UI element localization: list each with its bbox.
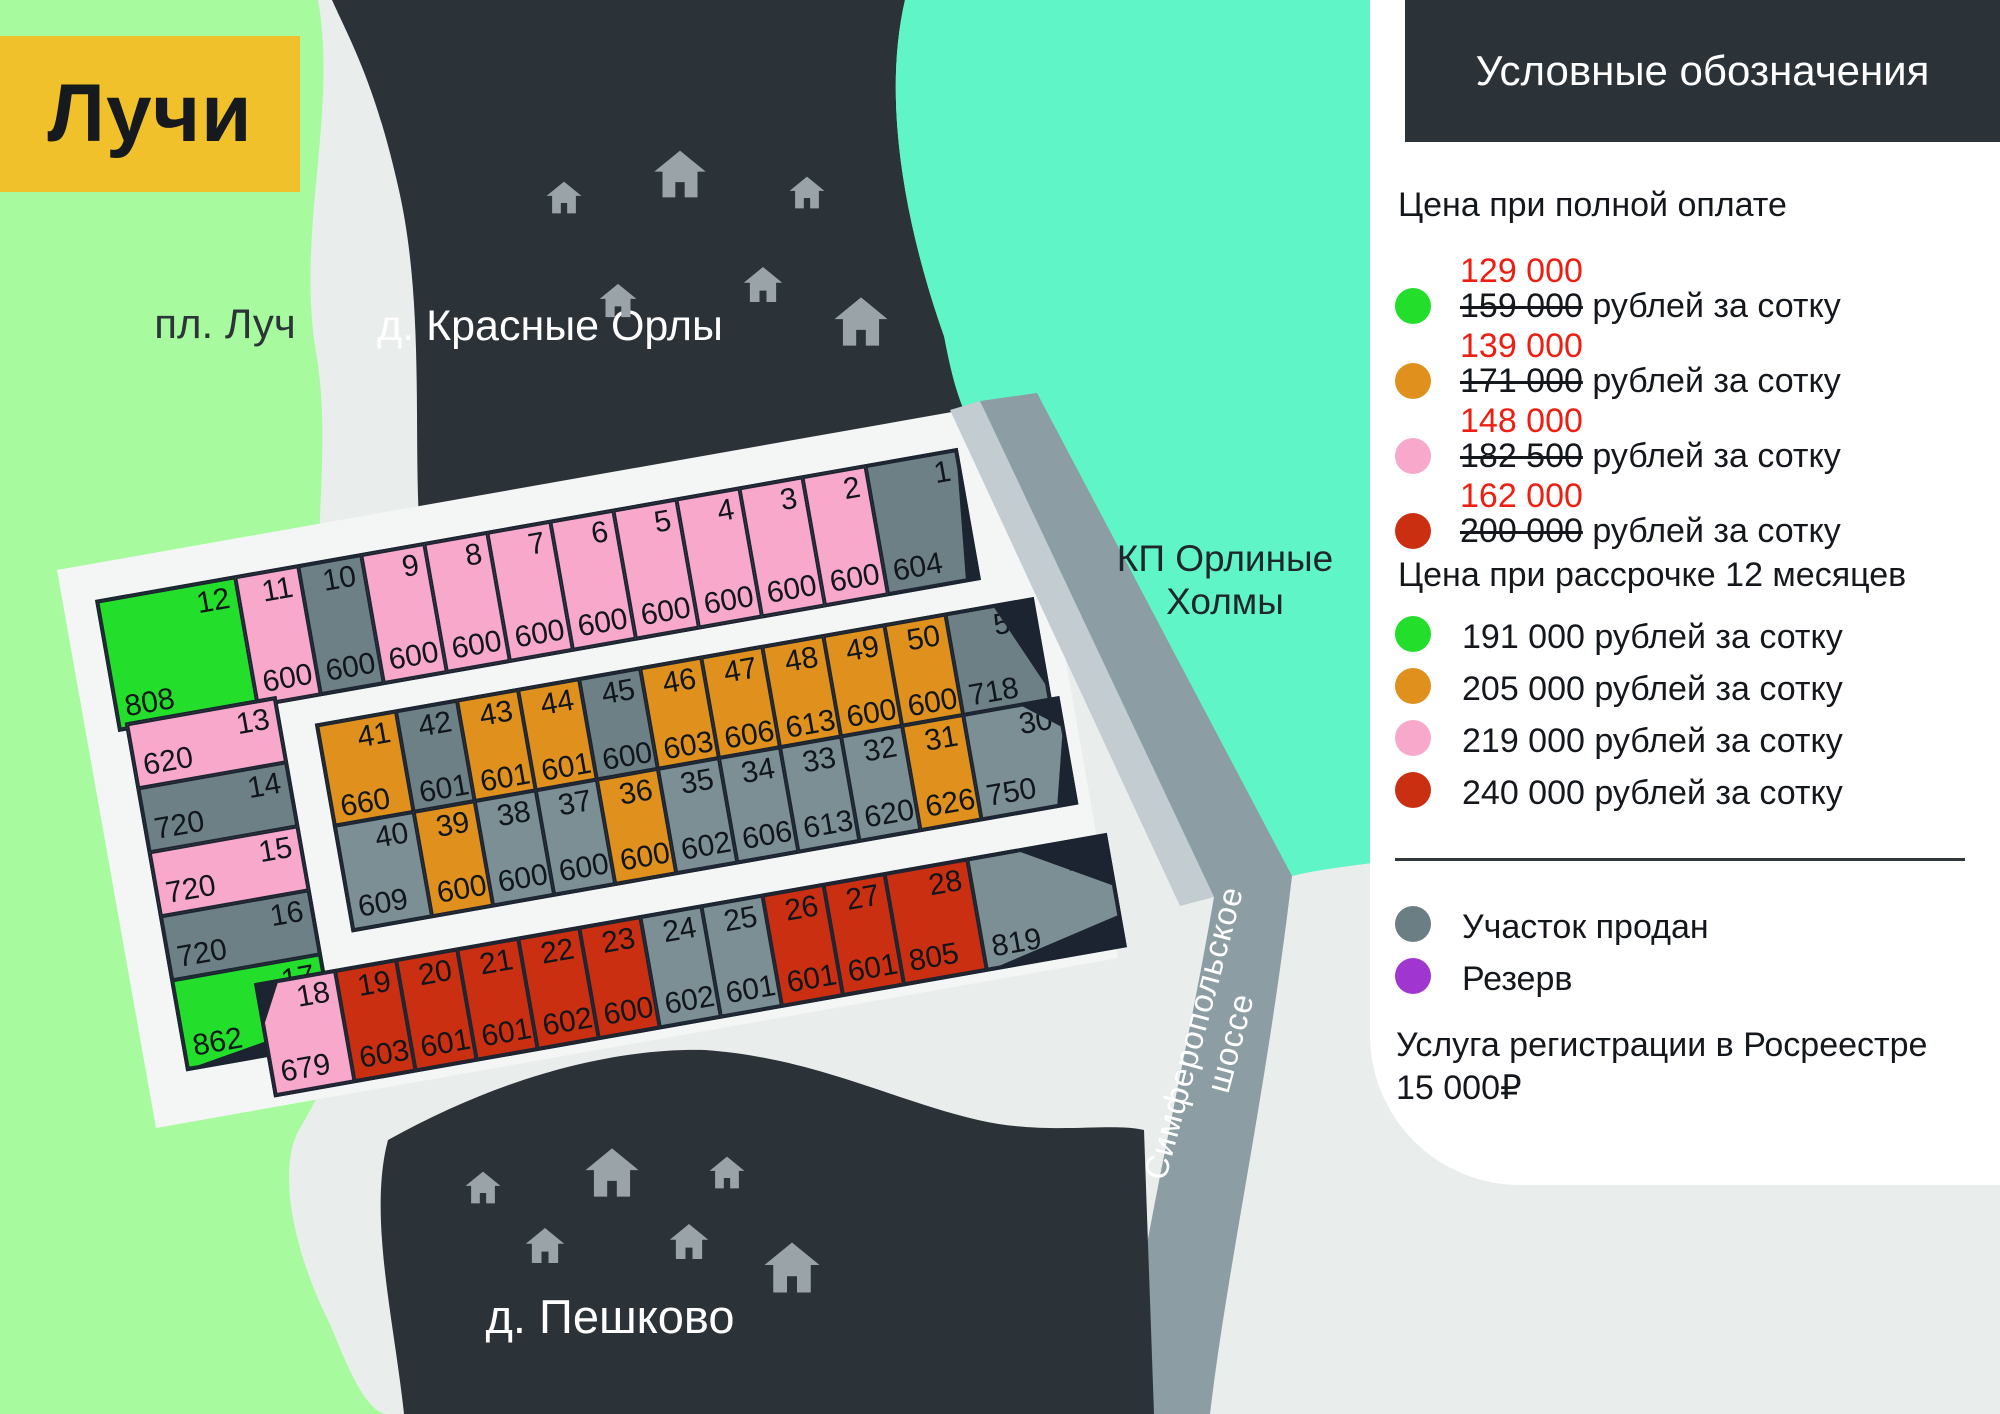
plot-area-value: 679	[278, 1047, 333, 1089]
plot-area-value: 819	[989, 922, 1044, 964]
registration-note-line2: 15 000₽	[1396, 1068, 1522, 1108]
plot-area-value: 720	[163, 869, 218, 911]
plot-area-value: 750	[984, 772, 1039, 814]
plot-number: 23	[599, 922, 638, 961]
plot-area-value: 601	[845, 947, 900, 989]
legend-dot-orange	[1395, 363, 1431, 399]
plot-area-value: 606	[740, 815, 795, 857]
house-icon	[708, 1155, 746, 1195]
installment-red: 240 000 рублей за сотку	[1462, 774, 1843, 813]
legend-header: Условные обозначения	[1405, 0, 2000, 142]
plot-area-value: 626	[923, 782, 978, 824]
new-price-pink: 148 000	[1460, 402, 1583, 441]
plot-area-value: 601	[723, 969, 778, 1011]
plot-number: 21	[477, 943, 516, 982]
label-peshkovo: д. Пешково	[420, 1290, 800, 1344]
house-icon	[668, 1222, 710, 1266]
installment-pink: 219 000 рублей за сотку	[1462, 722, 1843, 761]
house-icon	[464, 1170, 502, 1210]
plot-area-value: 613	[801, 804, 856, 846]
plot-area-value: 609	[356, 882, 411, 924]
plot-number: 41	[355, 716, 394, 755]
plot-area-value: 720	[152, 805, 207, 847]
label-kp-line2: Холмы	[1085, 581, 1365, 624]
old-price-green: 159 000 рублей за сотку	[1460, 287, 1841, 326]
plot-area-value: 600	[638, 591, 693, 633]
new-price-red: 162 000	[1460, 477, 1583, 516]
plot-number: 43	[477, 694, 516, 733]
house-icon	[524, 1226, 566, 1270]
plot-number: 14	[245, 767, 284, 806]
house-icon	[788, 175, 826, 215]
plot-number: 1	[931, 455, 953, 491]
plot-number: 8	[463, 537, 485, 573]
plot-area-value: 600	[323, 647, 378, 689]
plot-area-value: 604	[890, 547, 945, 589]
new-price-green: 129 000	[1460, 252, 1583, 291]
plot-area-value: 602	[679, 826, 734, 868]
plot-number: 29	[1064, 840, 1103, 879]
plot-number: 28	[926, 864, 965, 903]
plot-area-value: 603	[357, 1034, 412, 1076]
plot-area-value: 600	[556, 847, 611, 889]
plot-number: 12	[194, 582, 233, 621]
installment-heading: Цена при рассрочке 12 месяцев	[1398, 556, 1906, 595]
plot-number: 37	[556, 784, 595, 823]
house-icon	[545, 180, 583, 220]
installment-orange: 205 000 рублей за сотку	[1462, 670, 1843, 709]
plot-number: 49	[843, 630, 882, 669]
status-sold: Участок продан	[1462, 908, 1709, 947]
plot-area-value: 600	[434, 869, 489, 911]
plot-area-value: 600	[575, 602, 630, 644]
legend-dot-green	[1395, 288, 1431, 324]
plot-number: 36	[617, 773, 656, 812]
plot-number: 51	[991, 604, 1030, 643]
plot-area-value: 600	[827, 558, 882, 600]
plot-number: 7	[526, 526, 548, 562]
plot-area-value: 862	[190, 1021, 245, 1063]
plot-area-value: 602	[540, 1001, 595, 1043]
full-payment-heading: Цена при полной оплате	[1398, 186, 1787, 225]
plot-area-value: 600	[764, 569, 819, 611]
plot-number: 6	[589, 515, 611, 551]
plot-number: 38	[495, 795, 534, 834]
plot-number: 48	[782, 641, 821, 680]
old-price-pink: 182 500 рублей за сотку	[1460, 437, 1841, 476]
plot-number: 25	[721, 900, 760, 939]
plot-number: 2	[841, 471, 863, 507]
legend-dot-green-2	[1395, 616, 1431, 652]
land-plot-map: Лучи пл. Луч д. Красные Орлы д. Пешково …	[0, 0, 2000, 1414]
label-kp-line1: КП Орлиные	[1085, 538, 1365, 581]
legend-dot-red	[1395, 513, 1431, 549]
plot-number: 44	[538, 684, 577, 723]
house-icon	[832, 295, 890, 353]
legend-dot-sold	[1395, 906, 1431, 942]
plot-number: 32	[861, 730, 900, 769]
plot-number: 19	[355, 965, 394, 1004]
plot-area-value: 600	[601, 991, 656, 1033]
plot-number: 9	[399, 548, 421, 584]
legend-divider	[1395, 858, 1965, 861]
label-krasnye-orly: д. Красные Орлы	[360, 302, 740, 351]
plot-number: 16	[267, 895, 306, 934]
plot-area-value: 601	[479, 1012, 534, 1054]
label-kp-orlinye-kholmy: КП Орлиные Холмы	[1085, 538, 1365, 623]
plot-area-value: 600	[495, 858, 550, 900]
old-price-orange: 171 000 рублей за сотку	[1460, 362, 1841, 401]
legend-panel: Условные обозначения Цена при полной опл…	[1370, 0, 2000, 1185]
label-pl-luch: пл. Луч	[95, 300, 355, 348]
plot-number: 26	[782, 889, 821, 928]
plot-area-value: 600	[260, 658, 315, 700]
plot-number: 24	[660, 911, 699, 950]
house-icon	[652, 148, 708, 205]
legend-dot-pink-2	[1395, 720, 1431, 756]
plot-number: 46	[660, 662, 699, 701]
plot-area-value: 602	[662, 980, 717, 1022]
plot-number: 31	[922, 720, 961, 759]
plot-area-value: 600	[386, 635, 441, 677]
legend-title: Условные обозначения	[1476, 47, 1930, 95]
plot-number: 27	[843, 879, 882, 918]
plot-area-value: 720	[174, 933, 229, 975]
plot-number: 45	[599, 673, 638, 712]
plot-number: 22	[538, 932, 577, 971]
plot-area-value: 600	[701, 580, 756, 622]
plot-number: 50	[904, 619, 943, 658]
plot-number: 30	[1016, 703, 1055, 742]
plot-number: 33	[800, 741, 839, 780]
house-icon	[742, 265, 784, 309]
plot-area-value: 620	[862, 793, 917, 835]
registration-note-line1: Услуга регистрации в Росреестре	[1396, 1026, 1927, 1065]
house-icon	[598, 282, 638, 324]
house-icon	[762, 1240, 822, 1300]
plot-area-value: 600	[512, 613, 567, 655]
plot-area-value: 601	[784, 958, 839, 1000]
plot-number: 42	[416, 705, 455, 744]
plot-area-value: 600	[449, 624, 504, 666]
legend-dot-orange-2	[1395, 668, 1431, 704]
plot-area-value: 600	[617, 836, 672, 878]
new-price-orange: 139 000	[1460, 327, 1583, 366]
plot-number: 47	[721, 651, 760, 690]
old-price-red: 200 000 рублей за сотку	[1460, 512, 1841, 551]
project-title: Лучи	[47, 67, 252, 161]
plot-number: 20	[416, 954, 455, 993]
plot-number: 34	[739, 752, 778, 791]
plot-number: 10	[320, 560, 359, 599]
legend-dot-red-2	[1395, 772, 1431, 808]
legend-dot-pink	[1395, 438, 1431, 474]
plot-number: 4	[715, 493, 737, 529]
plot-number: 13	[234, 703, 273, 742]
project-title-box: Лучи	[0, 36, 300, 192]
installment-green: 191 000 рублей за сотку	[1462, 618, 1843, 657]
plot-number: 5	[652, 504, 674, 540]
plot-number: 35	[678, 763, 717, 802]
plot-number: 15	[256, 831, 295, 870]
status-reserve: Резерв	[1462, 960, 1572, 999]
plot-area-value: 620	[141, 741, 196, 783]
plot-30[interactable]: 30750	[963, 698, 1076, 819]
plot-number: 40	[372, 816, 411, 855]
plot-number: 3	[778, 482, 800, 518]
plot-number: 18	[294, 975, 333, 1014]
plot-29[interactable]: 29819	[967, 835, 1124, 970]
plot-area-value: 805	[906, 937, 961, 979]
plot-area-value: 601	[418, 1023, 473, 1065]
plot-number: 39	[433, 806, 472, 845]
legend-dot-reserve	[1395, 958, 1431, 994]
plot-number: 11	[259, 571, 296, 610]
house-icon	[583, 1146, 641, 1204]
